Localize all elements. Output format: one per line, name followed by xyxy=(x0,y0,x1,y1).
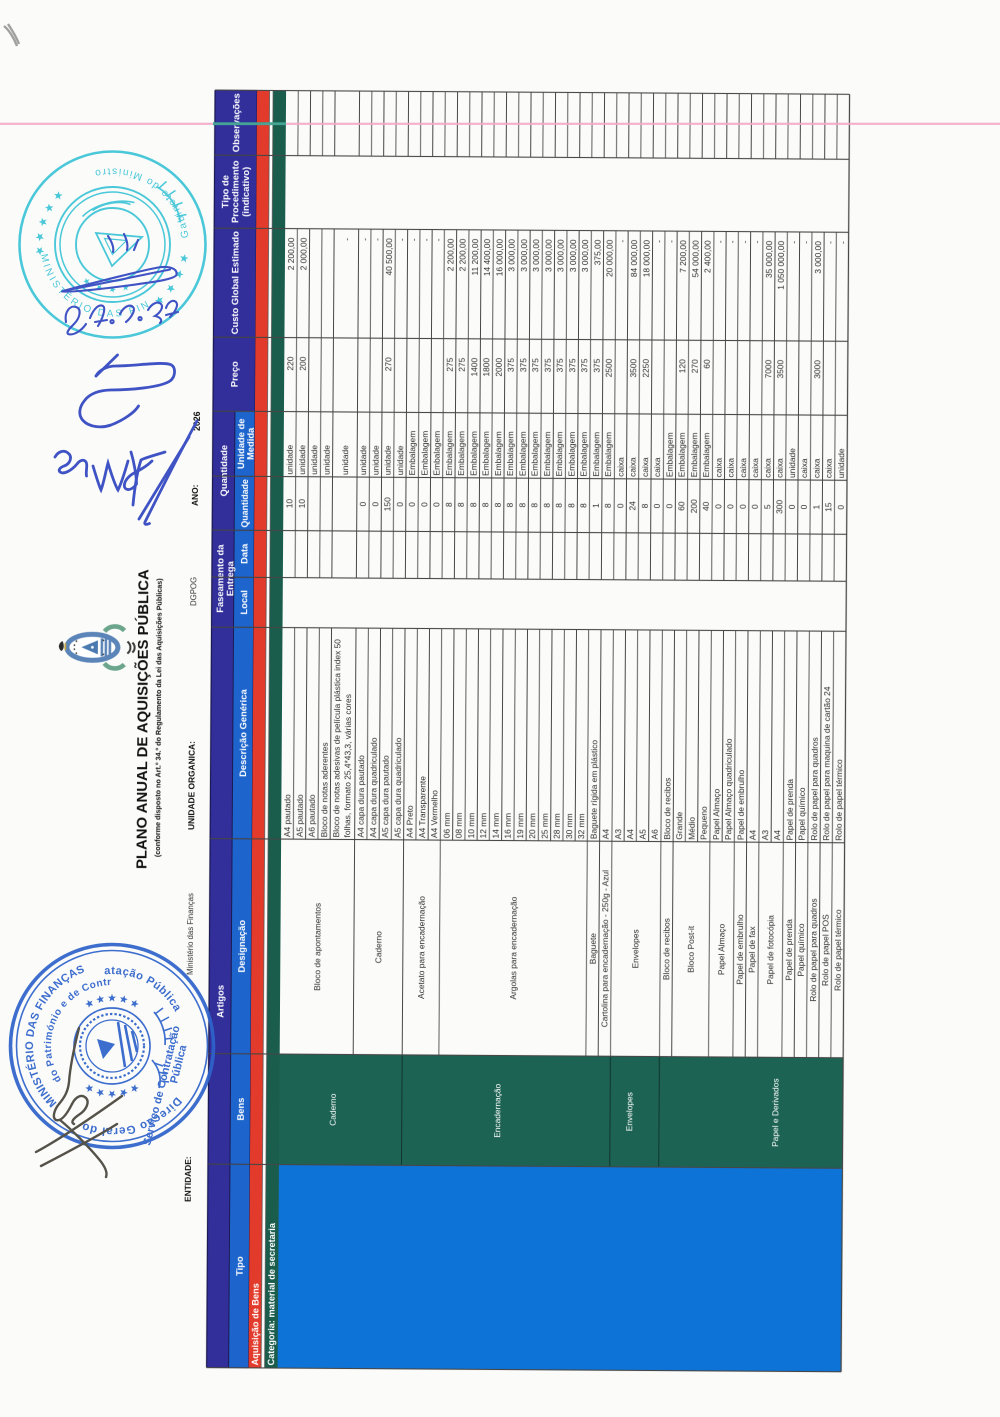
svg-text:Serviço de Contratação: Serviço de Contratação xyxy=(141,1024,182,1146)
